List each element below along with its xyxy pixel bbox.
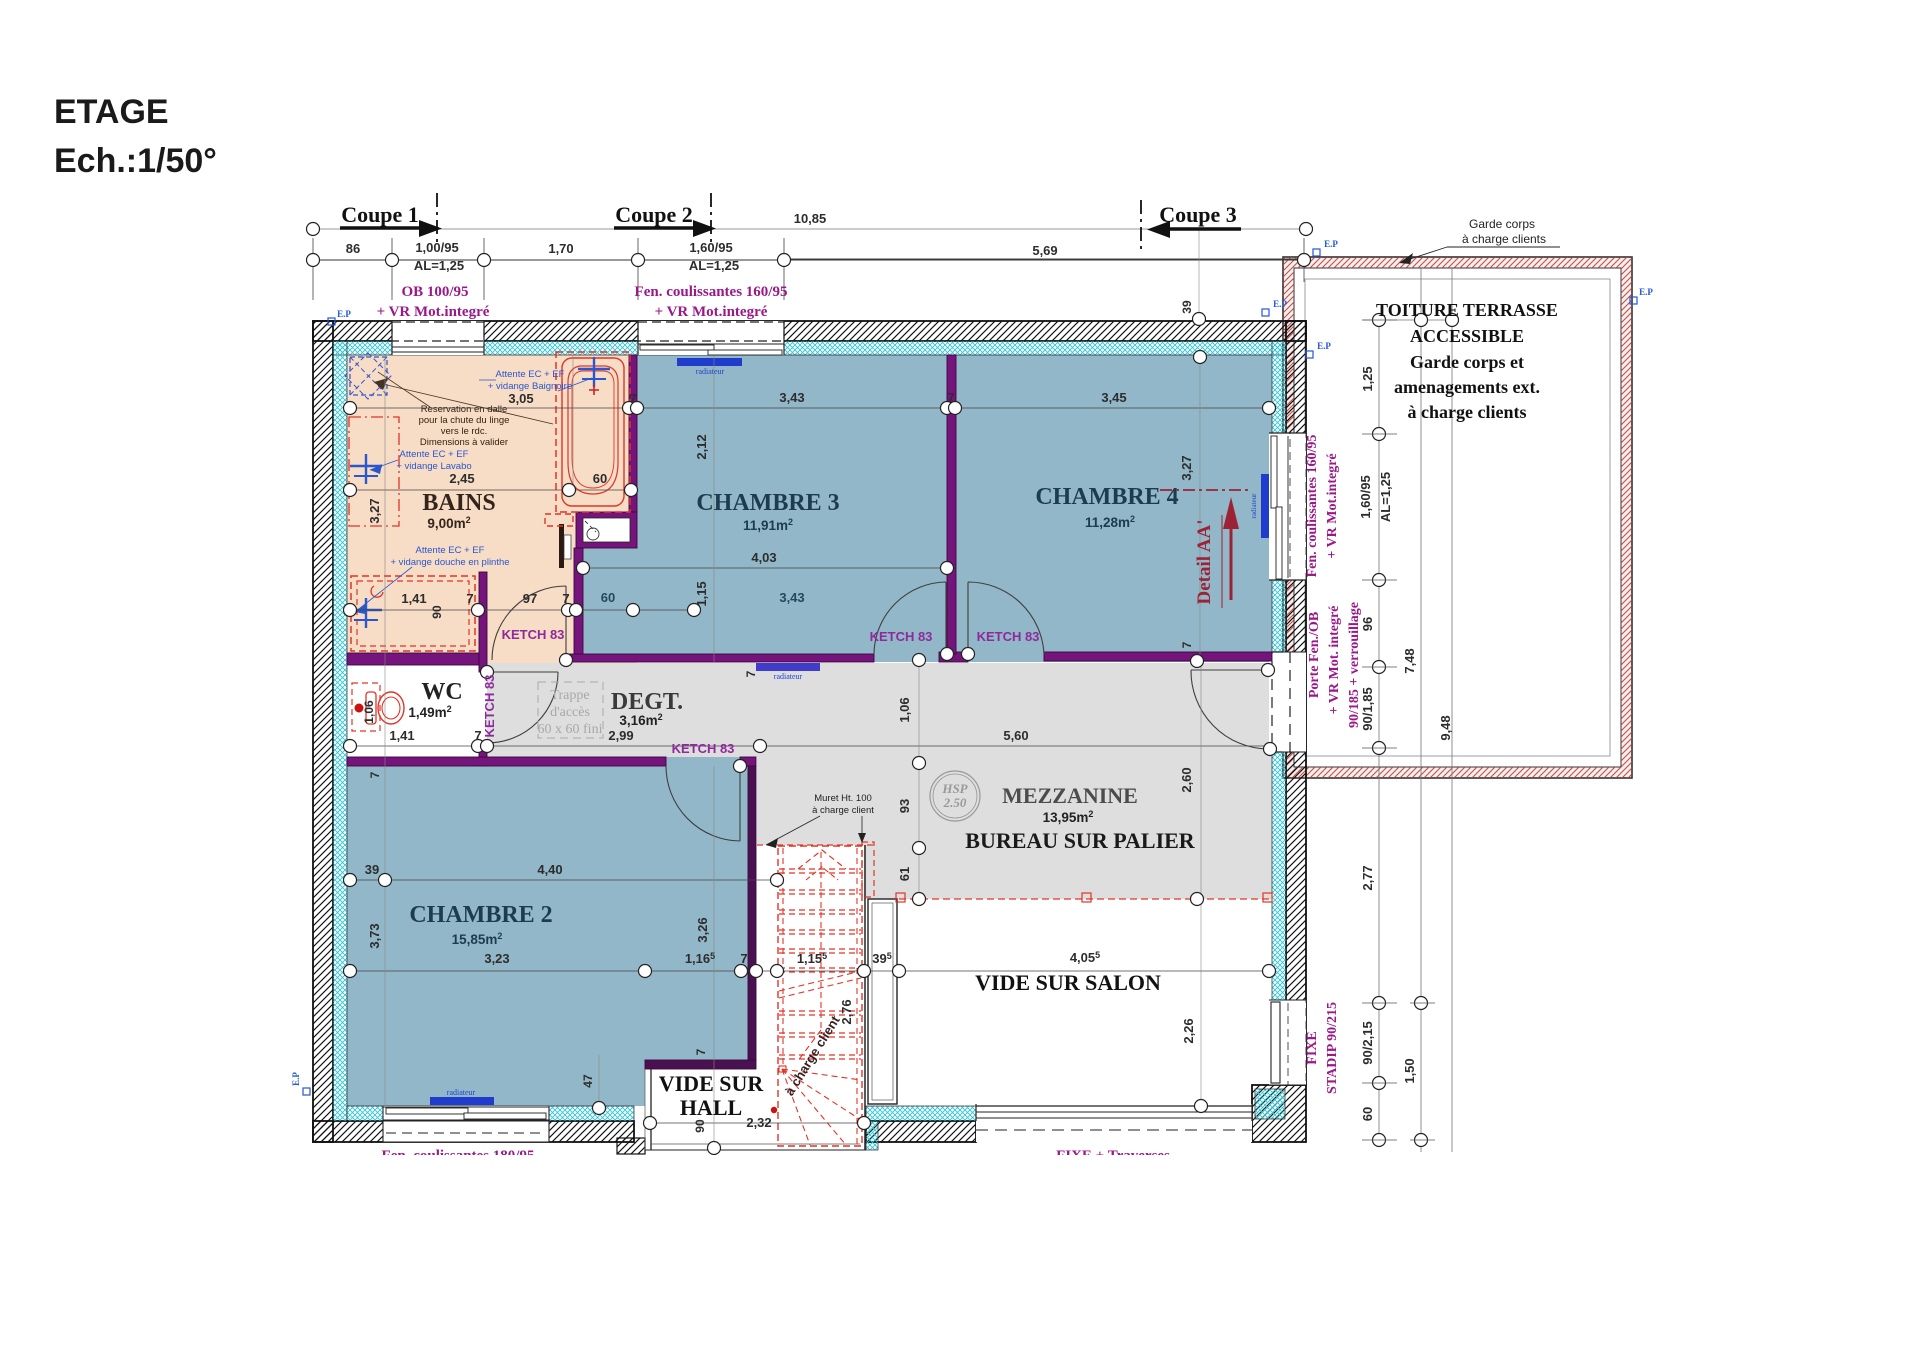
svg-text:1,49m2: 1,49m2 [408,704,451,720]
svg-text:KETCH 83: KETCH 83 [502,627,565,642]
svg-text:à charge clients: à charge clients [1408,402,1527,422]
svg-text:3,27: 3,27 [367,498,382,523]
svg-text:Attente EC + EF: Attente EC + EF [416,545,485,556]
svg-text:7: 7 [562,591,569,606]
svg-text:3,45: 3,45 [1101,390,1126,405]
svg-text:Muret Ht. 100: Muret Ht. 100 [814,793,872,804]
svg-text:2,77: 2,77 [1360,865,1375,890]
svg-text:BAINS: BAINS [422,490,495,516]
svg-text:60: 60 [1360,1107,1375,1121]
svg-text:90: 90 [430,605,444,619]
svg-text:7,48: 7,48 [1402,648,1417,673]
svg-text:9,00m2: 9,00m2 [427,515,470,531]
svg-text:2.50: 2.50 [943,795,967,810]
svg-text:WC: WC [421,679,462,705]
svg-text:vers le rdc.: vers le rdc. [441,426,487,437]
svg-text:ETAGE: ETAGE [54,93,169,131]
svg-text:Trappe: Trappe [550,688,589,703]
svg-text:Detail AA': Detail AA' [1194,520,1215,605]
svg-text:3,16m2: 3,16m2 [619,712,662,728]
svg-text:90/1,85: 90/1,85 [1360,687,1375,730]
svg-text:90/185 + verrouillage: 90/185 + verrouillage [1347,602,1362,728]
svg-text:E.P: E.P [291,1072,301,1086]
svg-text:VIDE SUR SALON: VIDE SUR SALON [975,970,1161,995]
svg-text:96: 96 [1360,617,1375,631]
svg-text:7: 7 [474,728,481,743]
svg-text:+ VR Mot.integré: + VR Mot.integré [1325,453,1340,558]
svg-text:CHAMBRE 3: CHAMBRE 3 [696,490,839,516]
svg-text:7: 7 [694,1048,708,1055]
svg-text:1,00/95: 1,00/95 [415,240,458,255]
svg-text:FIXE: FIXE [1305,1031,1320,1064]
svg-text:CHAMBRE 4: CHAMBRE 4 [1035,484,1178,510]
svg-text:47: 47 [581,1074,595,1088]
svg-text:radiateur: radiateur [696,367,725,376]
svg-text:60: 60 [601,590,615,605]
svg-text:AL=1,25: AL=1,25 [1378,472,1393,522]
svg-text:KETCH 83: KETCH 83 [977,629,1040,644]
svg-text:Coupe 1: Coupe 1 [341,202,419,227]
svg-text:1,25: 1,25 [1360,366,1375,391]
svg-text:90: 90 [693,1119,707,1133]
svg-text:4,40: 4,40 [537,862,562,877]
svg-text:Coupe 2: Coupe 2 [615,202,693,227]
svg-text:à charge clients: à charge clients [1462,232,1546,246]
svg-text:2,12: 2,12 [694,434,709,459]
svg-text:Attente EC + EF: Attente EC + EF [496,369,565,380]
svg-text:1,06: 1,06 [362,700,376,724]
svg-text:3,26: 3,26 [695,917,710,942]
svg-text:+ VR Mot.integré: + VR Mot.integré [655,304,768,320]
svg-text:Garde corps et: Garde corps et [1410,352,1524,372]
svg-text:+ vidange douche en plinthe: + vidange douche en plinthe [390,557,509,568]
svg-text:1,06: 1,06 [897,697,912,722]
svg-text:Coupe 3: Coupe 3 [1159,202,1237,227]
svg-text:E.P: E.P [1639,287,1653,297]
svg-text:+ VR Mot.integré: + VR Mot.integré [377,304,490,320]
svg-text:Porte Fen./OB: Porte Fen./OB [1307,612,1322,698]
svg-text:7: 7 [744,670,758,677]
svg-text:7: 7 [368,771,382,778]
svg-text:amenagements ext.: amenagements ext. [1394,377,1540,397]
svg-text:15,85m2: 15,85m2 [452,931,503,947]
svg-text:Garde corps: Garde corps [1469,217,1535,231]
svg-text:1,60/95: 1,60/95 [689,240,732,255]
svg-text:2,45: 2,45 [449,471,474,486]
svg-text:11,28m2: 11,28m2 [1085,514,1135,530]
svg-text:E.P: E.P [1317,341,1331,351]
svg-text:E.P: E.P [337,309,351,319]
svg-text:pour la chute du linge: pour la chute du linge [419,415,510,426]
svg-text:86: 86 [346,241,360,256]
svg-text:3,23: 3,23 [484,951,509,966]
svg-text:TOITURE TERRASSE: TOITURE TERRASSE [1376,300,1558,320]
svg-text:OB 100/95: OB 100/95 [401,284,468,300]
svg-text:à charge client: à charge client [812,805,874,816]
svg-text:VIDE SUR: VIDE SUR [659,1071,765,1096]
svg-text:5,69: 5,69 [1032,243,1057,258]
svg-text:MEZZANINE: MEZZANINE [1002,783,1138,808]
svg-text:3,05: 3,05 [508,391,533,406]
svg-text:10,85: 10,85 [794,211,827,226]
svg-text:2,32: 2,32 [746,1115,771,1130]
svg-text:5,60: 5,60 [1003,728,1028,743]
svg-text:KETCH 83: KETCH 83 [672,741,735,756]
svg-text:39: 39 [365,862,379,877]
svg-text:1,60/95: 1,60/95 [1358,475,1373,518]
svg-text:11,91m2: 11,91m2 [743,517,793,533]
svg-text:1,70: 1,70 [548,241,573,256]
svg-text:1,15: 1,15 [694,581,709,606]
svg-text:7: 7 [466,591,473,606]
svg-text:DEGT.: DEGT. [611,689,683,715]
svg-text:3,27: 3,27 [1179,455,1194,480]
svg-text:AL=1,25: AL=1,25 [689,258,739,273]
svg-text:9,48: 9,48 [1438,715,1453,740]
svg-text:1,50: 1,50 [1402,1058,1417,1083]
svg-text:2,60: 2,60 [1179,767,1194,792]
svg-text:1,41: 1,41 [401,591,426,606]
svg-text:KETCH 83: KETCH 83 [482,675,497,738]
svg-text:4,03: 4,03 [751,550,776,565]
svg-text:2,99: 2,99 [608,728,633,743]
svg-text:HALL: HALL [680,1095,742,1120]
svg-text:Reservation en dalle: Reservation en dalle [421,404,508,415]
svg-text:Attente EC + EF: Attente EC + EF [400,449,469,460]
svg-text:CHAMBRE 2: CHAMBRE 2 [409,902,552,928]
svg-text:+ VR Mot. integré: + VR Mot. integré [1327,606,1342,715]
svg-text:Ech.:1/50°: Ech.:1/50° [54,142,217,180]
svg-text:1,41: 1,41 [389,728,414,743]
svg-text:Fen. coulissantes 160/95: Fen. coulissantes 160/95 [1305,435,1320,578]
svg-text:E.P: E.P [1273,299,1287,309]
svg-text:radiateur: radiateur [774,672,803,681]
svg-text:7: 7 [947,390,954,405]
svg-text:Dimensions à valider: Dimensions à valider [420,437,508,448]
svg-text:2,26: 2,26 [1181,1018,1196,1043]
svg-text:BUREAU SUR PALIER: BUREAU SUR PALIER [965,828,1196,853]
svg-text:90/2,15: 90/2,15 [1360,1021,1375,1064]
svg-text:3,43: 3,43 [779,590,804,605]
svg-text:7: 7 [629,391,636,406]
svg-text:radiateur: radiateur [1250,493,1258,519]
svg-text:39: 39 [1180,300,1194,314]
svg-text:3,73: 3,73 [367,923,382,948]
svg-text:60: 60 [593,471,607,486]
svg-text:60 x 60 fini: 60 x 60 fini [538,722,603,737]
svg-text:93: 93 [897,799,912,813]
svg-text:KETCH 83: KETCH 83 [870,629,933,644]
svg-text:97: 97 [523,591,537,606]
svg-text:3,43: 3,43 [779,390,804,405]
svg-text:HSP: HSP [941,781,968,796]
svg-text:ACCESSIBLE: ACCESSIBLE [1410,326,1524,346]
svg-text:61: 61 [897,867,912,881]
svg-text:radiateur: radiateur [447,1088,476,1097]
svg-text:STADIP 90/215: STADIP 90/215 [1325,1002,1340,1094]
svg-text:13,95m2: 13,95m2 [1043,809,1094,825]
svg-text:Fen. coulissantes 160/95: Fen. coulissantes 160/95 [635,284,788,300]
svg-text:7: 7 [1180,641,1194,648]
svg-text:d'accès: d'accès [550,705,590,720]
svg-text:E.P: E.P [1324,239,1338,249]
svg-text:7: 7 [740,951,747,966]
svg-text:AL=1,25: AL=1,25 [414,258,464,273]
